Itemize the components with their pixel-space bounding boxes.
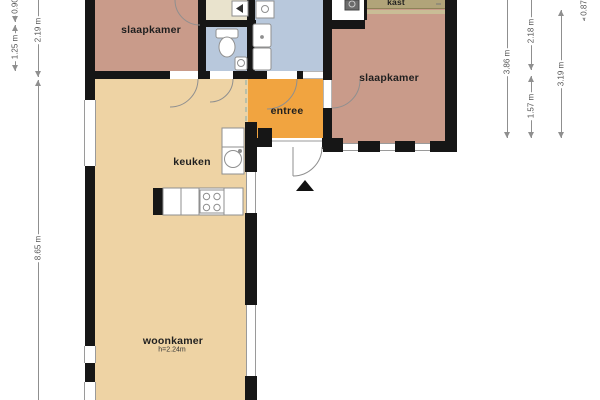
toilet-icon xyxy=(216,29,238,57)
dimension-label: 0.90 xyxy=(10,0,21,16)
arrow-down-icon xyxy=(12,65,18,71)
dimension-left-8-65: 8.65 m xyxy=(31,80,45,400)
door-arc-toilet xyxy=(210,79,233,102)
dimension-label: 1.25 m xyxy=(10,33,21,61)
arrow-up-icon xyxy=(12,25,18,31)
dimension-right-0-87: 0.87 xyxy=(577,0,591,21)
label-bedroom-right: slaapkamer xyxy=(359,72,419,84)
floorplan-canvas: slaapkamer slaapkamer entree keuken woon… xyxy=(0,0,600,400)
label-bedroom-left: slaapkamer xyxy=(121,24,181,36)
dimension-label: 2.19 m xyxy=(33,16,44,44)
label-entry: entree xyxy=(271,105,304,117)
washing-machine-icon xyxy=(345,0,359,10)
arrow-down-icon xyxy=(528,64,534,70)
shower-icon xyxy=(253,24,271,70)
dimension-right-3-86: 3.86 m xyxy=(500,0,514,138)
boiler-icon xyxy=(232,1,248,16)
door-arc-front-door xyxy=(293,147,322,176)
arrow-up-icon xyxy=(558,10,564,16)
kitchen-sink-icon xyxy=(222,128,244,174)
entrance-arrow-icon xyxy=(296,180,314,191)
arrow-up-icon xyxy=(35,80,41,86)
stove-icon xyxy=(200,190,224,213)
dimension-label: 0.87 xyxy=(579,0,590,18)
door-arc-bedroomL-top xyxy=(175,0,200,25)
label-living-room: woonkamer xyxy=(143,335,203,347)
door-arc-bedroomR xyxy=(332,80,360,108)
arrow-down-icon xyxy=(35,71,41,77)
dimension-left-1-25: 1.25 m xyxy=(8,25,22,71)
dimension-left-2-19: 2.19 m xyxy=(31,0,45,77)
dimension-right-1-57: 1.57 m xyxy=(524,76,538,138)
dimension-left-0-90: 0.90 xyxy=(8,0,22,22)
dimension-right-2-18: 2.18 m xyxy=(524,0,538,70)
arrow-down-icon xyxy=(504,132,510,138)
hand-basin-icon xyxy=(235,57,247,70)
arrow-down-icon xyxy=(558,132,564,138)
dimension-label: 3.86 m xyxy=(502,48,513,76)
dimension-label: 1.57 m xyxy=(526,92,537,120)
dimension-label: 3.19 m xyxy=(556,60,567,88)
dimension-label: 8.65 m xyxy=(33,234,44,262)
arrow-down-icon xyxy=(12,16,18,22)
dimension-label: 2.18 m xyxy=(526,17,537,45)
label-kitchen: keuken xyxy=(173,156,210,168)
arrow-up-icon xyxy=(528,76,534,82)
dimension-right-3-19: 3.19 m xyxy=(554,10,568,138)
arrow-down-icon xyxy=(528,132,534,138)
label-living-ceiling-height: h=2.24m xyxy=(158,347,185,354)
label-closet: kast xyxy=(387,0,405,7)
washbasin-icon xyxy=(256,1,274,18)
door-arc-bedroomL xyxy=(170,79,198,107)
